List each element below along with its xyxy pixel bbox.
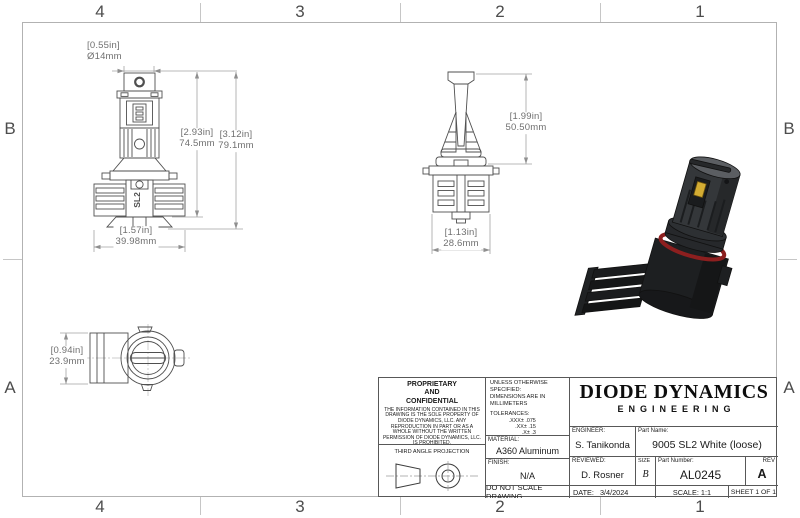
- dim-mm: Ø14mm: [87, 52, 122, 63]
- dim-mm: 28.6mm: [443, 239, 479, 250]
- do-not-scale-cell: DO NOT SCALE DRAWING: [486, 486, 570, 498]
- side-view: [423, 72, 499, 223]
- specs-cell: UNLESS OTHERWISE SPECIFIED: DIMENSIONS A…: [486, 378, 570, 436]
- scale-text: SCALE: 1:1: [673, 488, 711, 497]
- third-angle-projection-icon: [384, 458, 480, 494]
- dim-mm: 39.98mm: [115, 237, 156, 248]
- dim-mm: 79.1mm: [218, 141, 254, 152]
- company-name: DIODE DYNAMICS: [570, 382, 778, 403]
- dim-side-upper-height: [1.99in] 50.50mm: [503, 112, 548, 134]
- material-label: MATERIAL:: [486, 436, 569, 444]
- engineer-cell: ENGINEER: S. Tanikonda: [570, 427, 636, 457]
- engineer-label: ENGINEER:: [570, 427, 635, 435]
- engineer-value: S. Tanikonda: [570, 440, 635, 451]
- finish-cell: FINISH: N/A: [486, 459, 570, 486]
- dim-mm: 50.50mm: [505, 123, 546, 134]
- part-name-value: 9005 SL2 White (loose): [636, 439, 778, 451]
- dim-top-view-height: [0.94in] 23.9mm: [47, 346, 87, 368]
- units-text: DIMENSIONS ARE IN MILLIMETERS: [490, 394, 569, 408]
- rev-cell: REV A: [746, 457, 778, 486]
- company-logo-cell: DIODE DYNAMICS ENGINEERING: [570, 378, 778, 427]
- company-division: ENGINEERING: [570, 404, 778, 414]
- finish-label: FINISH:: [486, 459, 569, 467]
- front-view: SL2: [94, 73, 185, 227]
- part-name-cell: Part Name: 9005 SL2 White (loose): [636, 427, 778, 457]
- date-label: DATE:: [573, 488, 594, 497]
- date-value: 3/4/2024: [600, 488, 628, 497]
- dim-mm: 23.9mm: [49, 357, 85, 368]
- dim-body-height: [2.93in] 74.5mm: [177, 128, 217, 150]
- part-logo-text: SL2: [132, 192, 142, 208]
- title-block: PROPRIETARY AND CONFIDENTIAL THE INFORMA…: [378, 377, 777, 497]
- part-number-cell: Part Number: AL0245: [656, 457, 746, 486]
- projection-label: THIRD ANGLE PROJECTION: [379, 449, 485, 455]
- size-label: SIZE: [636, 457, 655, 464]
- part-number-label: Part Number:: [656, 457, 745, 465]
- scale-cell: SCALE: 1:1: [656, 486, 729, 498]
- sheet-cell: SHEET 1 OF 1: [729, 486, 778, 498]
- reviewed-value: D. Rosner: [570, 470, 635, 481]
- proprietary-body: THE INFORMATION CONTAINED IN THIS DRAWIN…: [379, 408, 485, 445]
- rev-label: REV: [746, 457, 778, 465]
- proprietary-cell: PROPRIETARY AND CONFIDENTIAL THE INFORMA…: [379, 378, 486, 445]
- reviewed-cell: REVIEWED: D. Rosner: [570, 457, 636, 486]
- sheet-text: SHEET 1 OF 1: [731, 489, 776, 496]
- projection-cell: THIRD ANGLE PROJECTION: [379, 445, 486, 498]
- top-view: [80, 324, 192, 396]
- dim-mm: 74.5mm: [179, 139, 215, 150]
- proprietary-heading: PROPRIETARY AND CONFIDENTIAL: [379, 381, 485, 406]
- material-cell: MATERIAL: A360 Aluminum: [486, 436, 570, 459]
- part-number-value: AL0245: [656, 468, 745, 482]
- part-name-label: Part Name:: [636, 427, 778, 435]
- date-cell: DATE: 3/4/2024: [570, 486, 656, 498]
- dim-base-width: [1.57in] 39.98mm: [113, 226, 158, 248]
- unless-specified-text: UNLESS OTHERWISE SPECIFIED:: [490, 380, 569, 394]
- size-value: B: [636, 469, 655, 480]
- dim-cap-diameter: [0.55in] Ø14mm: [87, 41, 122, 63]
- engineering-drawing-sheet: { "sheet": { "cols": ["4", "3", "2", "1"…: [0, 0, 800, 518]
- finish-value: N/A: [486, 471, 569, 481]
- do-not-scale-text: DO NOT SCALE DRAWING: [486, 486, 569, 498]
- tolerances-label: TOLERANCES:: [490, 411, 569, 418]
- dim-side-body-width: [1.13in] 28.6mm: [441, 228, 481, 250]
- material-value: A360 Aluminum: [486, 446, 569, 456]
- dim-overall-height: [3.12in] 79.1mm: [216, 130, 256, 152]
- size-cell: SIZE B: [636, 457, 656, 486]
- reviewed-label: REVIEWED:: [570, 457, 635, 465]
- iso-render-view: [575, 134, 760, 354]
- rev-value: A: [746, 467, 778, 481]
